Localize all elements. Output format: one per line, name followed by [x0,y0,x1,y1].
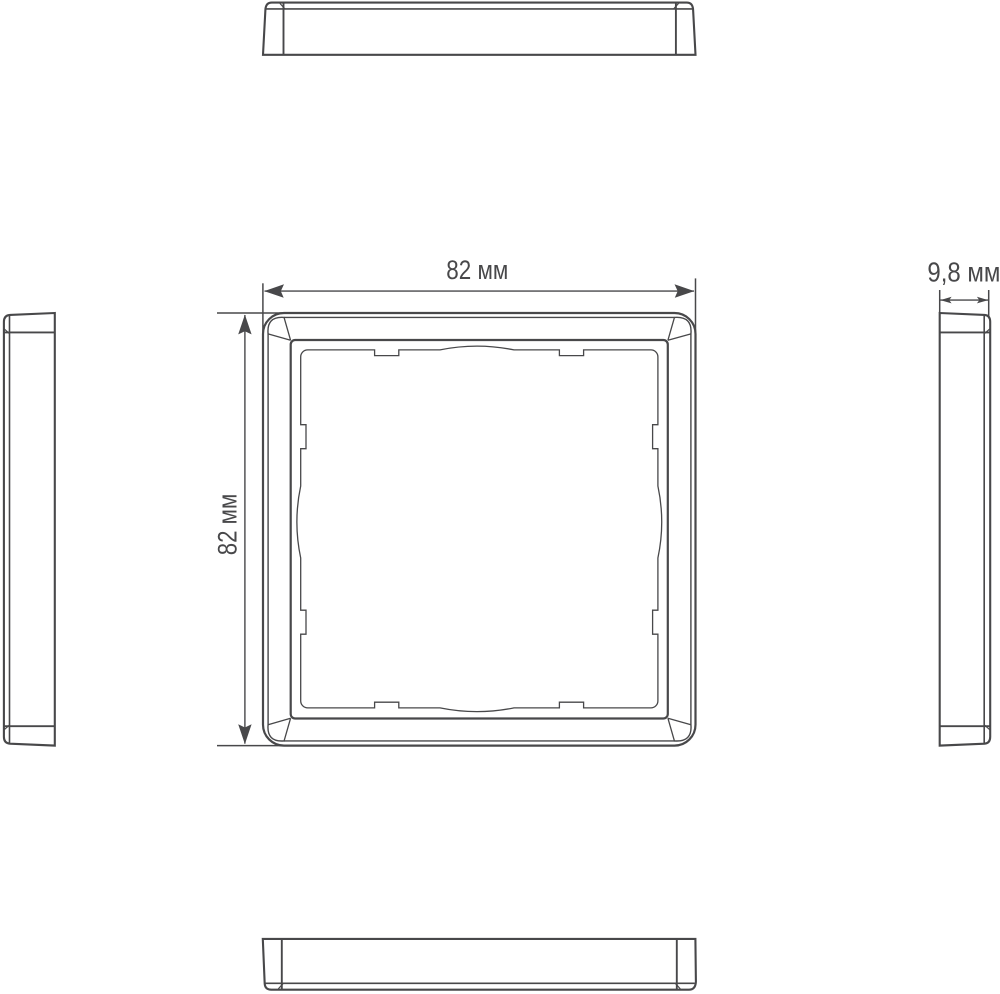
svg-text:9,8 мм: 9,8 мм [927,256,1000,287]
svg-text:82 мм: 82 мм [213,494,243,556]
svg-text:82 мм: 82 мм [446,255,508,285]
